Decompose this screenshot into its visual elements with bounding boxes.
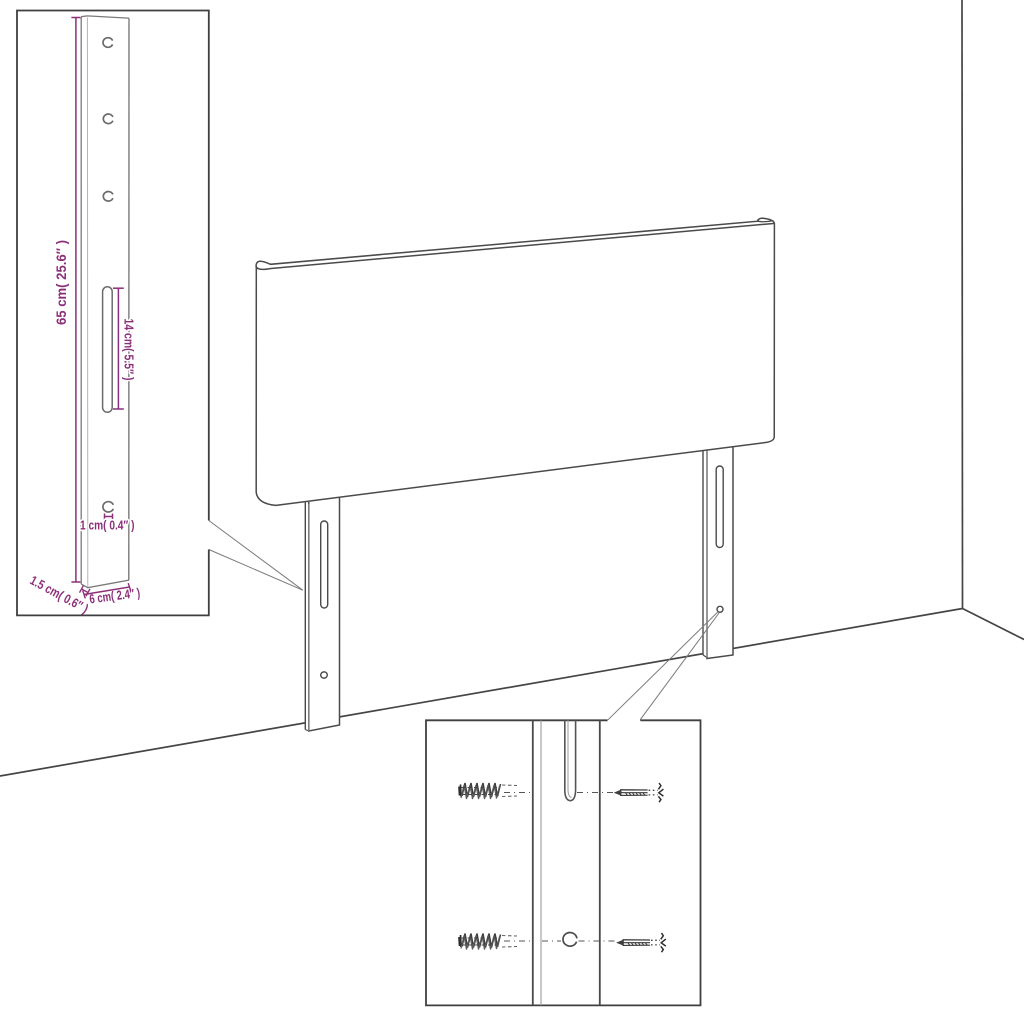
svg-text:65 cm( 25.6″ ): 65 cm( 25.6″ ) <box>53 240 69 325</box>
svg-text:1 cm( 0.4″ ): 1 cm( 0.4″ ) <box>80 519 135 533</box>
svg-text:14 cm( 5.5″ ): 14 cm( 5.5″ ) <box>122 319 136 381</box>
